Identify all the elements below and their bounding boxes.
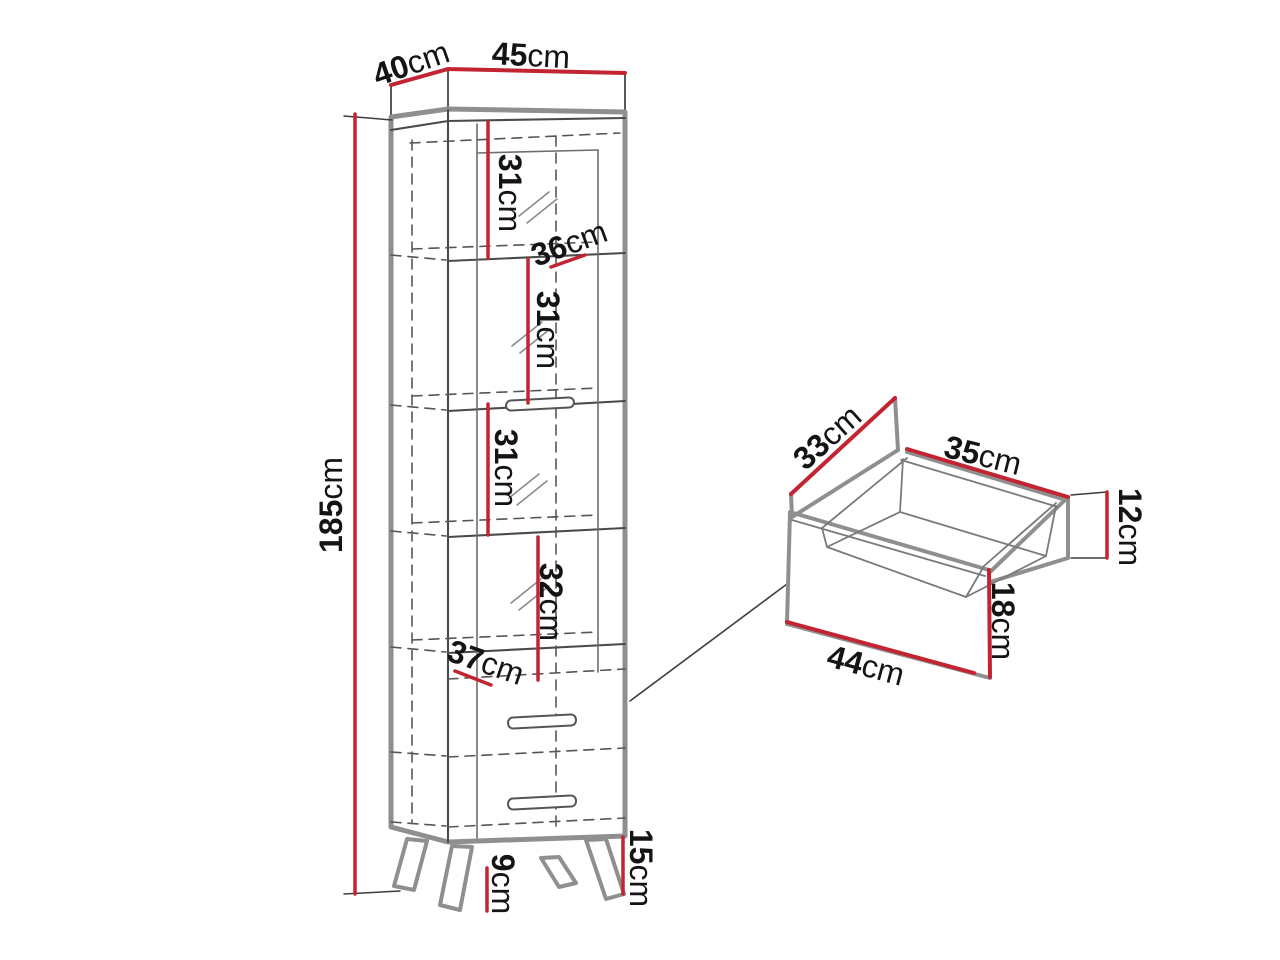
dim-label-drawer-depth-33: 33cm — [786, 398, 868, 477]
dim-value: 12 — [1112, 488, 1148, 524]
dim-unit: cm — [623, 864, 659, 907]
dim-label-drawer-front-height-18: 18cm — [985, 582, 1021, 660]
linear-dimension-lines — [355, 114, 1107, 911]
dim-value: 18 — [985, 582, 1021, 618]
dim-unit: cm — [488, 464, 524, 507]
glass-door-handle — [506, 397, 574, 411]
dimension-lines-red — [355, 69, 1107, 911]
diagram-page: 40cm 45cm 31cm 36cm 31cm 31cm 32cm 37cm … — [0, 0, 1280, 960]
dim-unit: cm — [492, 189, 528, 232]
dim-label-drawer-front-width-44: 44cm — [823, 638, 908, 693]
dim-label-width-45: 45cm — [491, 35, 571, 75]
furniture-dimension-diagram: 40cm 45cm 31cm 36cm 31cm 31cm 32cm 37cm … — [0, 0, 1280, 960]
dim-label-plinth-15: 15cm — [623, 829, 659, 907]
dim-value: 45 — [491, 35, 528, 73]
drawer-handle-upper — [508, 714, 576, 729]
dim-unit: cm — [533, 598, 569, 641]
dim-unit: cm — [530, 326, 566, 369]
dim-label-drawer-side-12: 12cm — [1112, 488, 1148, 566]
dimension-labels: 40cm 45cm 31cm 36cm 31cm 31cm 32cm 37cm … — [313, 33, 1148, 914]
dim-label-height-185: 185cm — [313, 457, 349, 553]
dim-value: 9 — [485, 854, 521, 872]
pointer-line-to-drawer-detail — [630, 584, 787, 701]
dim-value: 31 — [488, 429, 524, 465]
dim-label-shelf-36: 36cm — [526, 213, 612, 274]
dim-value: 15 — [623, 829, 659, 865]
dim-unit: cm — [985, 617, 1021, 660]
dim-value: 31 — [492, 154, 528, 190]
dim-unit: cm — [527, 37, 571, 75]
tall-cabinet-drawing — [344, 69, 787, 910]
dim-unit: cm — [1112, 523, 1148, 566]
dim-label-compartment-32: 32cm — [533, 563, 569, 641]
dim-unit: cm — [313, 457, 349, 500]
drawer-inner-lines — [792, 458, 1058, 597]
drawer-handle-lower — [508, 795, 576, 810]
drawer-height-bracket-lines — [1071, 492, 1107, 558]
dim-unit: cm — [485, 872, 521, 915]
dim-value: 32 — [533, 563, 569, 599]
dim-label-leg-9: 9cm — [485, 854, 521, 914]
dim-value: 31 — [530, 291, 566, 327]
dim-value: 185 — [313, 500, 349, 553]
dim-label-compartment-31c: 31cm — [488, 429, 524, 507]
dim-label-compartment-31b: 31cm — [530, 291, 566, 369]
dim-label-compartment-31a: 31cm — [492, 154, 528, 232]
